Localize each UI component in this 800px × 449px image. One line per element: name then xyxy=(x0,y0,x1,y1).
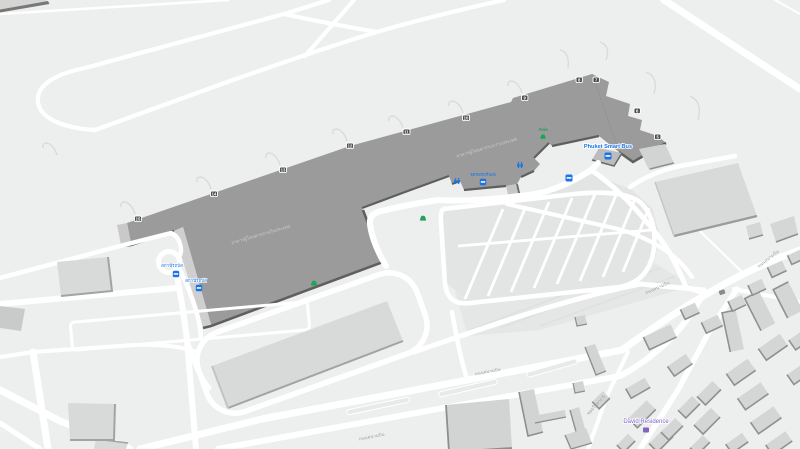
svg-text:15: 15 xyxy=(136,217,141,222)
svg-text:สถานีรถบัส: สถานีรถบัส xyxy=(161,263,183,268)
svg-text:10: 10 xyxy=(464,116,469,121)
svg-text:Avis: Avis xyxy=(538,127,548,132)
svg-text:David Residence: David Residence xyxy=(623,419,669,425)
svg-text:11: 11 xyxy=(404,130,409,135)
svg-text:12: 12 xyxy=(348,144,353,149)
svg-text:14: 14 xyxy=(212,192,217,197)
svg-text:สถานีรถบัส: สถานีรถบัส xyxy=(185,278,207,283)
svg-text:13: 13 xyxy=(281,168,286,173)
svg-text:Phuket Smart Bus: Phuket Smart Bus xyxy=(584,144,632,150)
